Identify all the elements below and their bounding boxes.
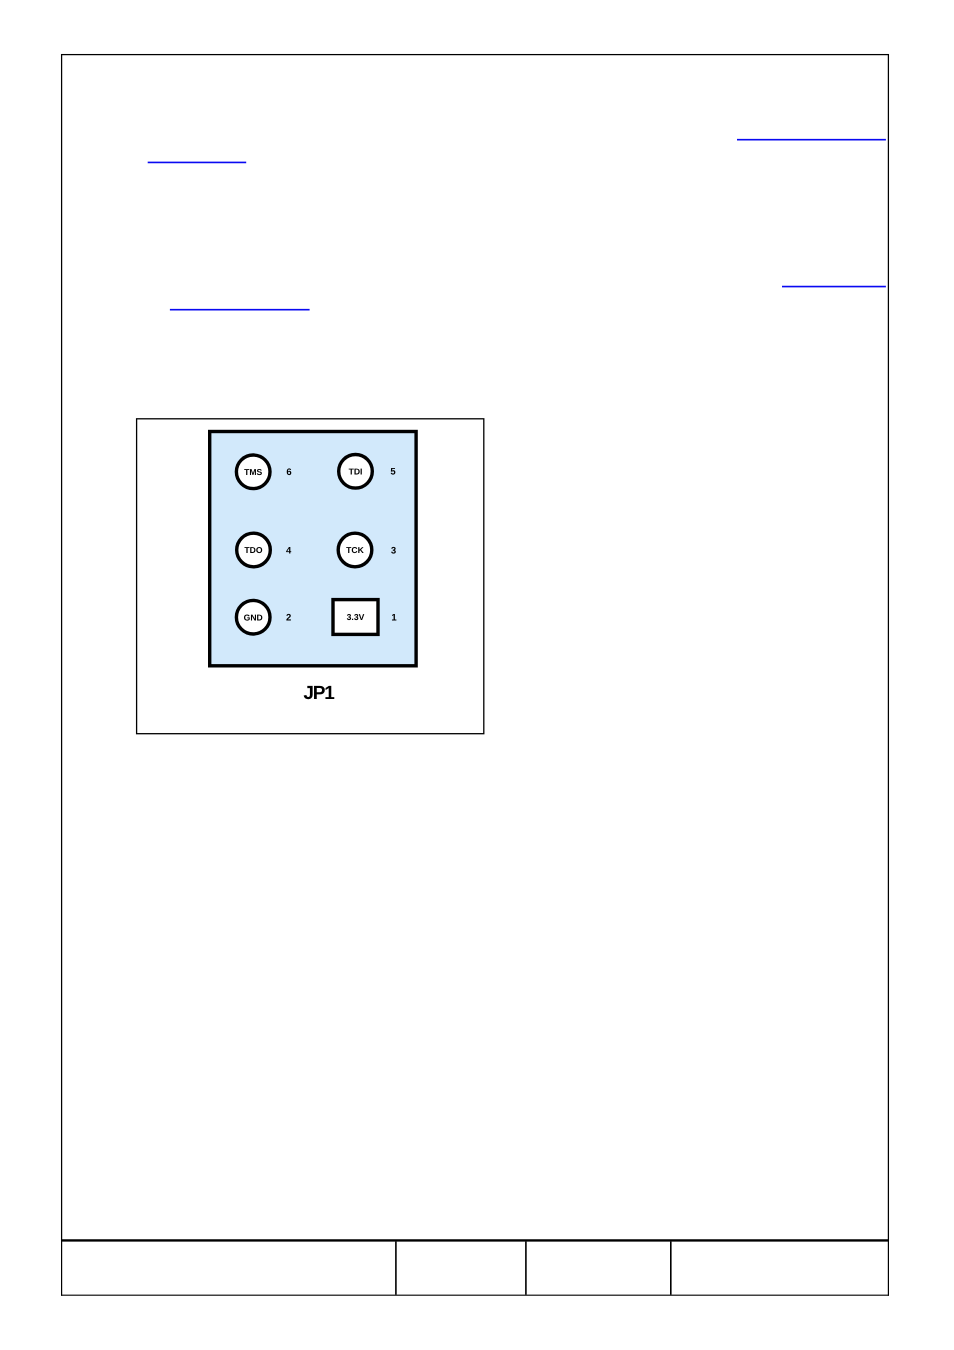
svg-text:GND: GND (244, 612, 263, 622)
svg-text:1: 1 (391, 613, 397, 624)
svg-text:5: 5 (390, 467, 396, 478)
svg-text:JP1: JP1 (303, 683, 335, 704)
svg-text:6: 6 (286, 467, 291, 478)
svg-text:3: 3 (391, 545, 396, 556)
svg-text:TDO: TDO (244, 545, 262, 555)
svg-text:TCK: TCK (346, 545, 364, 555)
svg-text:2: 2 (286, 613, 291, 624)
svg-text:TDI: TDI (349, 467, 363, 477)
svg-text:3.3V: 3.3V (347, 612, 365, 622)
svg-text:4: 4 (286, 545, 292, 556)
svg-text:TMS: TMS (244, 467, 262, 477)
